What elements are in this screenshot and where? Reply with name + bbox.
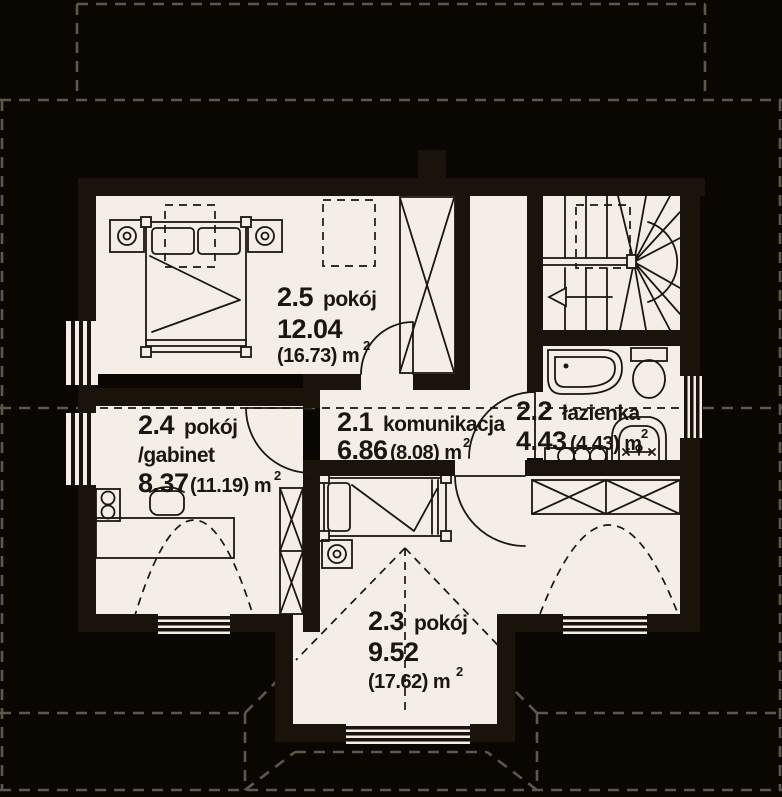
wall-2-4-east-upper xyxy=(303,374,320,408)
wall-2-5-2-4 xyxy=(96,388,303,406)
room-gross-area: (17.62) m xyxy=(368,671,450,693)
room-area: 12.04 xyxy=(277,314,343,344)
room-gross-area: (11.19) m xyxy=(190,475,271,497)
chimney xyxy=(418,150,446,178)
window-south-2-3 xyxy=(563,612,647,634)
window-west-2-5 xyxy=(66,321,98,385)
room-name-2: /gabinet xyxy=(138,444,215,467)
window-east-bathroom xyxy=(680,376,702,438)
stair-newel xyxy=(627,255,636,268)
room-name: pokój xyxy=(184,416,238,439)
wall-shaft-south xyxy=(413,374,470,390)
sup-2: 2 xyxy=(641,426,648,441)
wall-stairs-west xyxy=(527,196,543,392)
window-west-2-4 xyxy=(66,413,98,485)
room-number: 2.4 xyxy=(138,410,175,440)
wall-north xyxy=(78,178,705,196)
nightstand-right xyxy=(248,220,282,252)
nightstand-left xyxy=(110,220,144,252)
room-area: 9.52 xyxy=(368,637,419,667)
wall-2-5-south-a xyxy=(320,374,361,390)
sup-2: 2 xyxy=(463,435,470,450)
bed-post xyxy=(141,347,151,357)
room-name: pokój xyxy=(323,288,377,311)
room-name: pokój xyxy=(414,612,468,635)
bathtub-drain xyxy=(564,364,569,369)
window-bay-south xyxy=(346,722,470,744)
room-name: komunikacja xyxy=(383,413,506,436)
room-gross-area: (4.43) m xyxy=(570,433,642,455)
window-south-2-4 xyxy=(158,612,230,634)
sup-2: 2 xyxy=(274,468,281,483)
room-gross-area: (16.73) m xyxy=(277,345,359,367)
wall-west xyxy=(78,178,96,632)
room-gross-area: (8.08) m xyxy=(390,442,462,464)
sup-2: 2 xyxy=(363,338,370,353)
sup-2: 2 xyxy=(456,664,463,679)
bed-post xyxy=(441,531,451,541)
bed-post xyxy=(241,347,251,357)
room-area: 8.37 xyxy=(138,468,189,498)
floor-plan-page: 2.5 pokój 12.04 (16.73) m 2 2.4 pokój /g… xyxy=(0,0,782,797)
room-number: 2.2 xyxy=(516,396,552,426)
wall-stairs-bath xyxy=(543,330,680,346)
wall-shaft-east xyxy=(455,196,470,374)
room-number: 2.3 xyxy=(368,606,405,636)
floor-plan-canvas: 2.5 pokój 12.04 (16.73) m 2 2.4 pokój /g… xyxy=(0,0,782,797)
bed-post xyxy=(141,217,151,227)
wall-2-4-east-lower xyxy=(303,473,320,632)
bed-post xyxy=(241,217,251,227)
room-number: 2.1 xyxy=(337,407,374,437)
room-number: 2.5 xyxy=(277,282,314,312)
wall-corridor-south-b xyxy=(525,460,680,476)
room-name: łazienka xyxy=(562,402,641,425)
room-area: 4.43 xyxy=(516,426,567,456)
room-area: 6.86 xyxy=(337,435,388,465)
